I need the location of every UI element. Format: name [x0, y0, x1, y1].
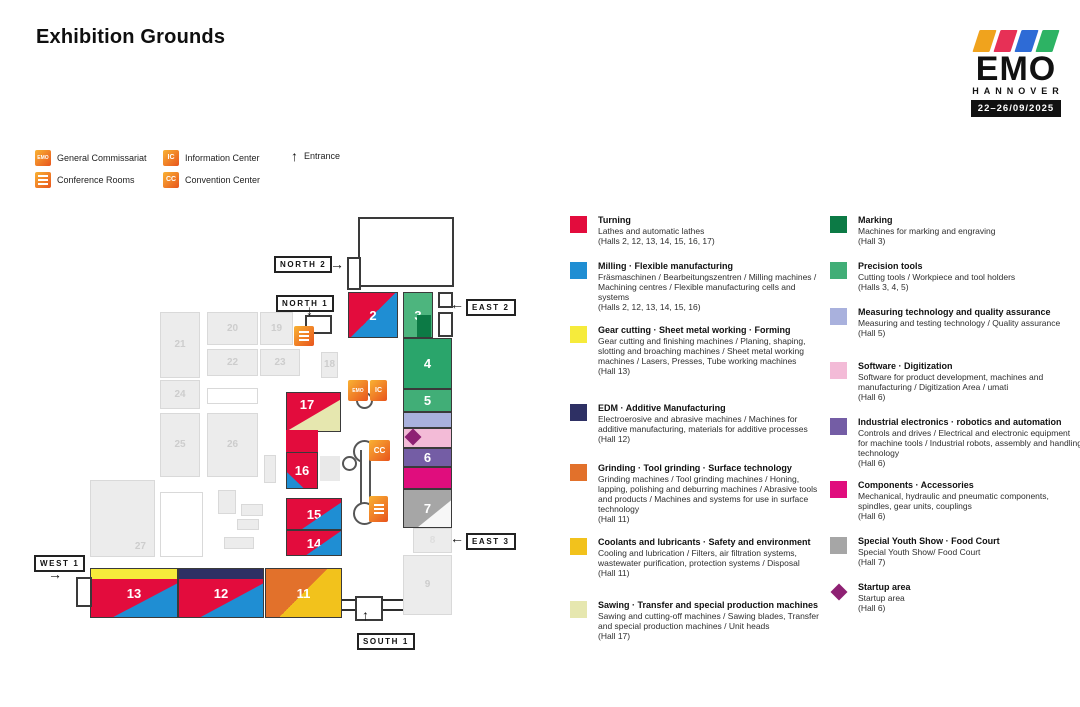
legend-item-title: Marking: [858, 215, 1080, 226]
legend-item-title: Gear cutting · Sheet metal working · For…: [598, 325, 826, 336]
legend-color-chip: [570, 464, 587, 481]
legend-item-text: Components · AccessoriesMechanical, hydr…: [858, 480, 1080, 521]
legend-item-halls: (Hall 5): [858, 328, 1080, 338]
hall-17: 17: [286, 392, 341, 432]
hall-number: 2: [369, 309, 376, 322]
convention-center-icon-map: CC: [369, 440, 390, 461]
legend-item-title: Software · Digitization: [858, 361, 1080, 372]
legend-item-halls: (Hall 6): [858, 511, 1080, 521]
gate-north-2: NORTH 2: [274, 256, 332, 273]
legend-item-title: Special Youth Show · Food Court: [858, 536, 1080, 547]
legend-item-title: Milling · Flexible manufacturing: [598, 261, 826, 272]
hall-17-connector: [286, 430, 318, 454]
legend-color-chip: [570, 601, 587, 618]
legend-item-desc: Gear cutting and finishing machines / Pl…: [598, 336, 826, 366]
legend-item-text: Startup areaStartup area(Hall 6): [858, 582, 1080, 613]
hall-22: 22: [207, 349, 258, 376]
hall-number: 7: [424, 502, 431, 515]
legend-color-chip: [830, 362, 847, 379]
hall-number: 22: [227, 358, 238, 368]
legend-item-halls: (Hall 13): [598, 366, 826, 376]
hall-23: 23: [260, 349, 300, 376]
gate-east-2-arrow: ←: [450, 297, 464, 311]
legend-item-title: Measuring technology and quality assuran…: [858, 307, 1080, 318]
hall-26: 26: [207, 413, 258, 477]
conference-rooms-glyph: [299, 331, 309, 341]
conference-rooms-icon-map: [369, 496, 388, 522]
legend-item-title: Turning: [598, 215, 826, 226]
legend-item-text: MarkingMachines for marking and engravin…: [858, 215, 1080, 246]
legend-item-title: Startup area: [858, 582, 1080, 593]
legend-item-desc: Grinding machines / Tool grinding machin…: [598, 474, 826, 514]
legend-color-chip: [830, 262, 847, 279]
legend-item-desc: Measuring and testing technology / Quali…: [858, 318, 1080, 328]
legend-color-chip: [830, 308, 847, 325]
hall-6: 6: [403, 448, 452, 467]
hall-number: 4: [424, 357, 431, 370]
legend-item-desc: Sawing and cutting-off machines / Sawing…: [598, 611, 826, 631]
legend-item-halls: (Halls 2, 12, 13, 14, 15, 16, 17): [598, 236, 826, 246]
legend-item-text: EDM · Additive ManufacturingElectroerosi…: [598, 403, 826, 444]
legend-item-text: Sawing · Transfer and special production…: [598, 600, 826, 641]
hall-7: 7: [403, 489, 452, 528]
hall-number: 20: [227, 324, 238, 334]
hall-9: 9: [403, 555, 452, 615]
information-center-icon-map: IC: [370, 380, 387, 401]
legend-item-desc: Startup area: [858, 593, 1080, 603]
gate-north-1-arrow: ↓: [306, 303, 313, 317]
hall-13: 13: [90, 568, 178, 618]
hall-24: 24: [160, 380, 200, 409]
small-building-1: [218, 490, 236, 514]
legend-item-title: Grinding · Tool grinding · Surface techn…: [598, 463, 826, 474]
hall-number: 24: [174, 390, 185, 400]
small-building-fw: [264, 455, 276, 483]
north-2-building: [347, 257, 361, 290]
hall-11: 11: [265, 568, 342, 618]
exhibition-grounds-page: Exhibition Grounds EMO HANNOVER 22–26/09…: [0, 0, 1080, 707]
hall-category-strip: [91, 569, 177, 579]
legend-item-desc: Controls and drives / Electrical and ele…: [858, 428, 1080, 458]
hall-12: 12: [178, 568, 264, 618]
legend-item-title: Precision tools: [858, 261, 1080, 272]
hall-number: 8: [430, 536, 436, 546]
legend-item-halls: (Hall 12): [598, 434, 826, 444]
conference-rooms-glyph: [374, 504, 384, 514]
legend-item-halls: (Halls 2, 12, 13, 14, 15, 16): [598, 302, 826, 312]
legend-color-chip: [570, 404, 587, 421]
hall-8: 8: [413, 528, 452, 553]
legend-item-title: Coolants and lubricants · Safety and env…: [598, 537, 826, 548]
gate-east-2: EAST 2: [466, 299, 516, 316]
gate-east-3: EAST 3: [466, 533, 516, 550]
legend-color-chip: [570, 538, 587, 555]
general-commissariat-icon-map: EMO: [348, 380, 368, 401]
hall-outline-top: [358, 217, 454, 287]
hall-number: 12: [214, 587, 228, 600]
legend-item-text: Gear cutting · Sheet metal working · For…: [598, 325, 826, 376]
legend-item-halls: (Hall 17): [598, 631, 826, 641]
hall-number: 9: [425, 580, 431, 590]
legend-color-chip: [830, 481, 847, 498]
legend-item-text: Special Youth Show · Food CourtSpecial Y…: [858, 536, 1080, 567]
hall-number: 21: [174, 340, 185, 350]
legend-item-title: Sawing · Transfer and special production…: [598, 600, 826, 611]
gate-west-1-arrow: →: [48, 567, 62, 581]
hall-number: 17: [300, 398, 314, 411]
hall-18: 18: [321, 352, 338, 378]
legend-item-halls: (Hall 11): [598, 568, 826, 578]
legend-item-text: Measuring technology and quality assuran…: [858, 307, 1080, 338]
hall-number: 23: [274, 358, 285, 368]
legend-item-text: Milling · Flexible manufacturingFräsmasc…: [598, 261, 826, 312]
legend-item-halls: (Hall 6): [858, 392, 1080, 402]
legend-item-desc: Electroerosive and abrasive machines / M…: [598, 414, 826, 434]
legend-color-chip: [570, 326, 587, 343]
legend-item-text: Precision toolsCutting tools / Workpiece…: [858, 261, 1080, 292]
legend-color-chip: [830, 216, 847, 233]
west-1-building: [76, 577, 92, 607]
hall-number: 6: [424, 451, 431, 464]
east-2-building-b: [438, 312, 453, 337]
legend-color-chip: [570, 262, 587, 279]
legend-color-chip: [830, 418, 847, 435]
legend-item-desc: Fräsmaschinen / Bearbeitungszentren / Mi…: [598, 272, 826, 302]
legend-item-halls: (Hall 6): [858, 603, 1080, 613]
legend-item-halls: (Hall 7): [858, 557, 1080, 567]
legend-item-halls: (Hall 3): [858, 236, 1080, 246]
hall-number: 18: [324, 360, 335, 370]
small-building-2: [241, 504, 263, 516]
hall-16: 16: [286, 452, 318, 489]
legend-item-text: Grinding · Tool grinding · Surface techn…: [598, 463, 826, 524]
legend-color-chip: [570, 216, 587, 233]
legend-item-halls: (Hall 6): [858, 458, 1080, 468]
hall-number: 16: [295, 464, 309, 477]
legend-item-halls: (Hall 11): [598, 514, 826, 524]
legend-item-text: TurningLathes and automatic lathes(Halls…: [598, 215, 826, 246]
hall-number: 25: [174, 440, 185, 450]
legend-item-text: Coolants and lubricants · Safety and env…: [598, 537, 826, 578]
legend-item-desc: Special Youth Show/ Food Court: [858, 547, 1080, 557]
legend-item-title: Industrial electronics · robotics and au…: [858, 417, 1080, 428]
legend-item-desc: Cooling and lubrication / Filters, air f…: [598, 548, 826, 568]
gate-south-1: SOUTH 1: [357, 633, 415, 650]
white-building-row: [207, 388, 258, 404]
hall-15: 15: [286, 498, 342, 530]
hall-number: 19: [271, 324, 282, 334]
hall-19: 19: [260, 312, 293, 345]
hall-27: 27: [90, 480, 155, 557]
legend-item-title: EDM · Additive Manufacturing: [598, 403, 826, 414]
legend-item-desc: Software for product development, machin…: [858, 372, 1080, 392]
legend-item-desc: Lathes and automatic lathes: [598, 226, 826, 236]
legend-color-chip: [830, 537, 847, 554]
legend-item-desc: Mechanical, hydraulic and pneumatic comp…: [858, 491, 1080, 511]
hall-2: 2: [348, 292, 398, 338]
small-building-3: [237, 519, 259, 530]
legend-item-text: Industrial electronics · robotics and au…: [858, 417, 1080, 468]
hall-4: 4: [403, 338, 452, 389]
gate-south-1-arrow: ↑: [362, 608, 369, 622]
white-building-27: [160, 492, 203, 557]
hall-6-components-band: [403, 467, 452, 489]
legend-item-desc: Machines for marking and engraving: [858, 226, 1080, 236]
hall-number: 13: [127, 587, 141, 600]
legend-item-title: Components · Accessories: [858, 480, 1080, 491]
legend-item-halls: (Halls 3, 4, 5): [858, 282, 1080, 292]
hall-16-notch: [320, 456, 340, 481]
legend-item-text: Software · DigitizationSoftware for prod…: [858, 361, 1080, 402]
hall-number: 5: [424, 394, 431, 407]
hall-5-measuring-band: [403, 412, 452, 428]
hall-14: 14: [286, 530, 342, 556]
south-1-building: [355, 596, 383, 621]
hall-20: 20: [207, 312, 258, 345]
gate-east-3-arrow: ←: [450, 531, 464, 545]
hall-number: 26: [227, 440, 238, 450]
hall-25: 25: [160, 413, 200, 477]
hall-3-dark-block: [417, 315, 431, 337]
small-building-4: [224, 537, 254, 549]
hall-21: 21: [160, 312, 200, 378]
gate-north-2-arrow: →: [330, 257, 344, 271]
hall-category-strip: [179, 569, 263, 579]
conference-rooms-icon-north: [294, 326, 314, 346]
legend-item-desc: Cutting tools / Workpiece and tool holde…: [858, 272, 1080, 282]
hall-5: 5: [403, 389, 452, 412]
hall-number: 11: [297, 587, 311, 600]
hall-number: 27: [135, 542, 146, 552]
